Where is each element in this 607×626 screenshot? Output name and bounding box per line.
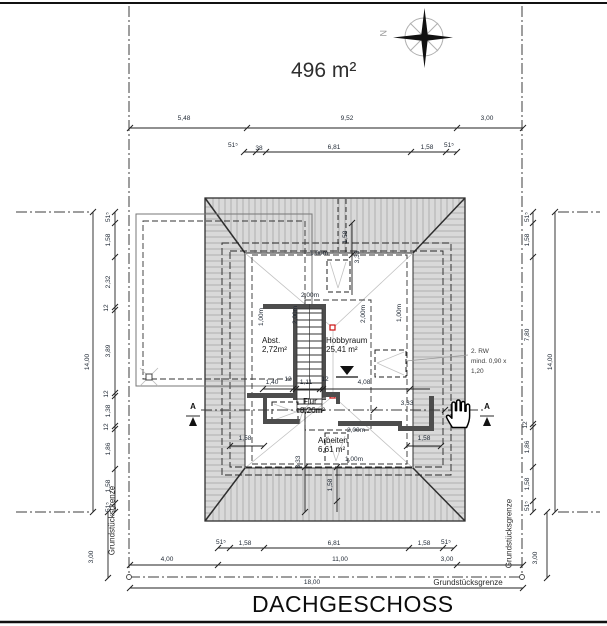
room-flur-area: 8,26m² xyxy=(300,406,325,415)
headroom-1m-left: 1,00m xyxy=(258,300,266,334)
room-abst-area: 2,72m² xyxy=(262,345,287,354)
dim-top: 9,52 xyxy=(330,115,364,123)
dim-bottom: 51⁵ xyxy=(429,539,463,547)
dim-eave-right: 1,58 xyxy=(407,435,441,443)
dim-bottom2: 4,00 xyxy=(150,556,184,564)
dim-left: 3,89 xyxy=(105,334,113,368)
room-arbeiten-area: 6,61 m² xyxy=(318,445,345,454)
dim-top: 3,00 xyxy=(470,115,504,123)
dim-right-total: 14,00 xyxy=(547,344,555,380)
dim-left: 12 xyxy=(103,291,111,325)
dim-top2: 38 xyxy=(242,145,276,153)
annotation-line1: 2. RW xyxy=(471,347,489,356)
dim-roof-top: 1,58 xyxy=(342,220,350,254)
dim-bottom: 6,81 xyxy=(317,540,351,548)
plot-area-label: 496 m² xyxy=(291,59,356,83)
room-abst-name: Abst. xyxy=(262,336,280,345)
dim-left: 1,86 xyxy=(105,432,113,466)
boundary-label-right: Grundstücksgrenze xyxy=(505,474,514,594)
dim-stair: 4,08 xyxy=(347,379,381,387)
plan-linework xyxy=(0,0,607,626)
dim-bottom-total: 18,00 xyxy=(295,579,329,587)
staircase xyxy=(297,304,322,412)
headroom-1m-top: 1,00m xyxy=(302,250,336,258)
boundary-label-bottom: Grundstücksgrenze xyxy=(408,578,528,587)
section-label-left: A xyxy=(183,402,203,411)
annotation-line3: 1,20 xyxy=(471,367,484,376)
ridge-marker-top xyxy=(330,325,335,330)
annotation-line2: mind. 0,90 x xyxy=(471,357,506,366)
room-hobbyraum-area: 25,41 m² xyxy=(326,345,358,354)
dim-left-total: 14,00 xyxy=(84,344,92,380)
boundary-corner-left xyxy=(127,575,132,580)
dim-right: 1,58 xyxy=(524,223,532,257)
dim-right: 7,80 xyxy=(524,318,532,352)
dim-roof-bottom: 3,33 xyxy=(295,445,303,479)
dim-right: 1,86 xyxy=(524,430,532,464)
section-label-right: A xyxy=(477,402,497,411)
dim-roof-bottom: 1,58 xyxy=(327,468,335,502)
headroom-2m-left: 2,00m xyxy=(292,298,300,332)
dim-roof-top: 3,33 xyxy=(354,240,362,274)
dim-right: 51⁵ xyxy=(524,489,532,523)
dim-top2: 6,81 xyxy=(317,144,351,152)
room-hobbyraum-name: Hobbyraum xyxy=(326,336,367,345)
north-arrow-icon xyxy=(393,8,453,68)
dim-bottom2: 11,00 xyxy=(323,556,357,564)
dim-left: 1,58 xyxy=(105,223,113,257)
dim-right-offset: 3,00 xyxy=(532,541,540,575)
dim-eave-left: 1,58 xyxy=(228,435,262,443)
room-arbeiten-name: Arbeiten xyxy=(318,436,348,445)
floorplan-sheet: 496 m² N DACHGESCHOSS Abst. 2,72m² Hobby… xyxy=(0,0,607,626)
dim-top2: 51⁵ xyxy=(432,142,466,150)
dim-bottom: 1,58 xyxy=(228,540,262,548)
dim-left: 51⁵ xyxy=(105,490,113,524)
room-flur-name: Flur xyxy=(303,397,317,406)
dim-bottom2: 3,00 xyxy=(430,556,464,564)
dim-left-offset: 3,00 xyxy=(88,540,96,574)
headroom-1m-right: 1,00m xyxy=(396,296,404,330)
dim-flur-width: 3,33 xyxy=(390,400,424,408)
page-title: DACHGESCHOSS xyxy=(252,591,454,618)
headroom-2m-bottom: 2,00m xyxy=(339,427,373,435)
headroom-2m-right: 2,00m xyxy=(360,297,368,331)
roof-plan xyxy=(205,198,465,521)
dim-stair: 12 xyxy=(308,376,342,384)
dim-top: 5,48 xyxy=(167,115,201,123)
headroom-1m-bottom: 1,00m xyxy=(337,456,371,464)
north-letter: N xyxy=(378,30,388,42)
